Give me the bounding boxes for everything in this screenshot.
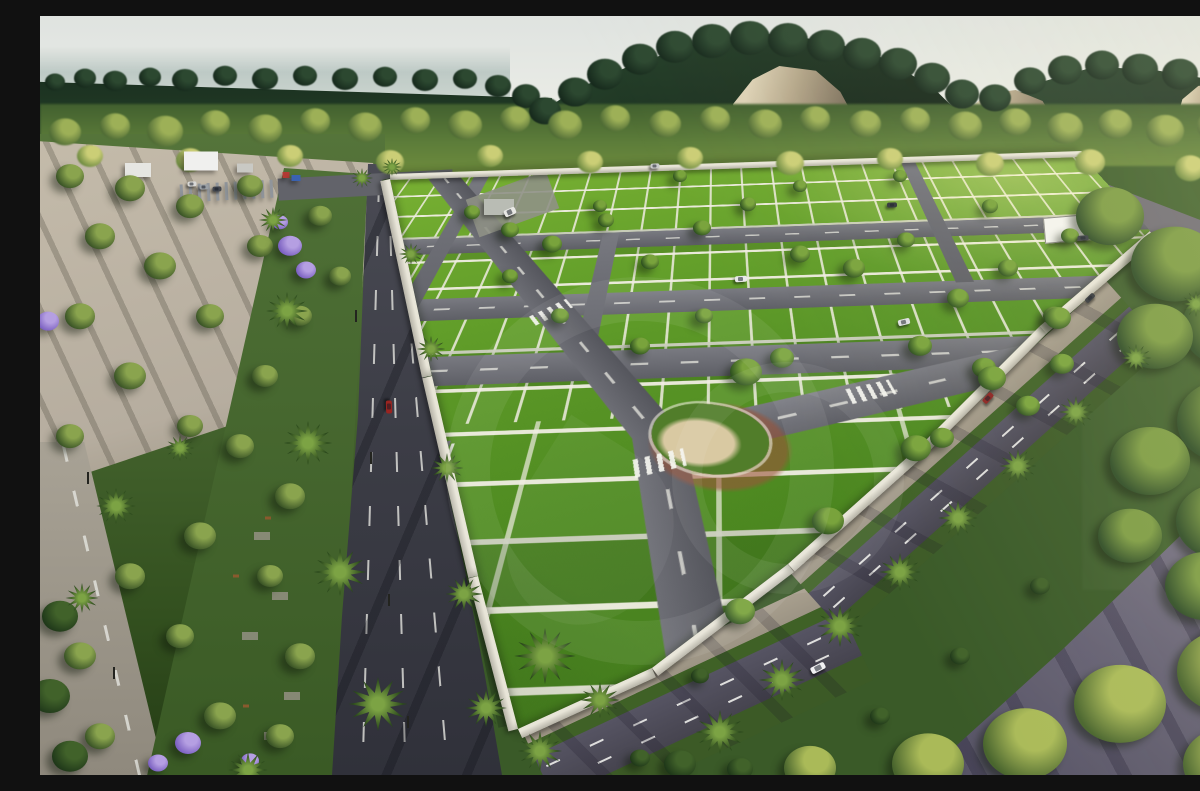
scene-aerial-render: Aerial architectural render of a walled … bbox=[40, 16, 1200, 775]
bush-sprite bbox=[870, 708, 890, 725]
lane-marking bbox=[361, 182, 380, 775]
bush-sprite bbox=[727, 758, 753, 775]
bush-sprite bbox=[1030, 578, 1050, 595]
bush-sprite bbox=[950, 648, 970, 665]
brtree-sprite bbox=[784, 746, 836, 775]
billboard-sign bbox=[1043, 214, 1089, 244]
